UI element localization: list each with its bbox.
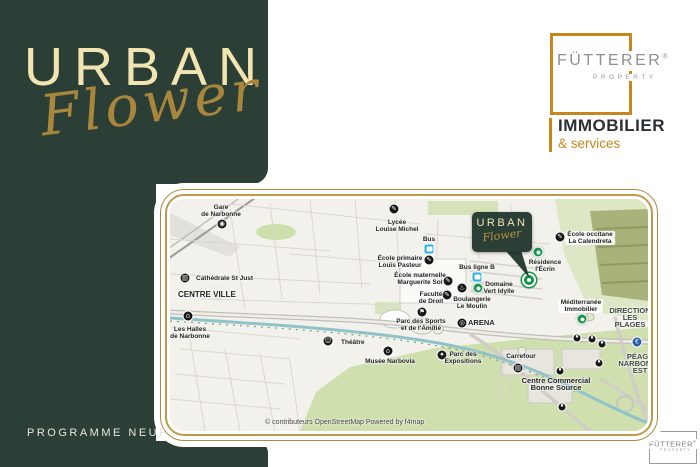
- urban-flower-callout: URBAN Flower: [472, 212, 532, 252]
- residence-l-ecrin-icon: [533, 247, 544, 258]
- map-content: ◉Garede Narbonne▥Cathédrale St JustCENTR…: [170, 199, 648, 431]
- gare-de-narbonne-icon: ◉: [217, 219, 228, 230]
- parc-des-expositions-label: Parc desExpositions: [445, 351, 482, 365]
- arena-label: ARENA: [468, 319, 495, 326]
- registered-mark: ®: [662, 54, 670, 61]
- boulangerie-le-moulin-label: BoulangerieLe Moulin: [453, 296, 491, 310]
- direction-les-plages-label: DIRECTIONLESPLAGES: [609, 307, 648, 329]
- shop-poi-4-icon: ▪: [595, 359, 604, 368]
- bus-label: Bus: [423, 236, 435, 243]
- logo-gold-bar: [549, 118, 552, 152]
- ecole-primaire-louis-pasteur-icon: ✎: [424, 255, 435, 266]
- domaine-vert-idylle-label: DomaineVert Idylle: [484, 281, 515, 295]
- shop-poi-2-icon: ▪: [588, 335, 597, 344]
- mediterranee-immobilier-label: MéditerranéeImmobilier: [559, 299, 603, 313]
- lycee-louise-michel-icon: ✎: [389, 204, 400, 215]
- centre-commercial-bonne-source-label: Centre CommercialBonne Source: [522, 377, 591, 391]
- bus-ligne-b-label: Bus ligne B: [459, 264, 495, 271]
- musee-narbovia-icon: ⌂: [383, 346, 394, 357]
- carrefour-label: Carrefour: [506, 353, 536, 360]
- futterer-logo: FÜTTERER® PROPERTY IMMOBILIER & services: [546, 28, 696, 160]
- flyer: URBAN Flower PROGRAMME NEUF FÜTTERER® PR…: [0, 0, 700, 467]
- cathedrale-st-just-icon: ▥: [180, 273, 191, 284]
- programme-neuf-label: PROGRAMME NEUF: [27, 427, 168, 439]
- shop-poi-1-icon: ▪: [573, 334, 582, 343]
- ecole-primaire-louis-pasteur-label: École primaireLouis Pasteur: [378, 255, 423, 269]
- parc-des-sports-icon: ⚑: [417, 307, 428, 318]
- theatre-icon: ☺: [323, 336, 334, 347]
- shop-poi-5-icon: ▪: [556, 367, 565, 376]
- bus-ligne-b-icon: [472, 272, 483, 283]
- logo-small-property: PROPERTY: [660, 448, 691, 452]
- musee-narbovia-label: Musée Narbovia: [365, 358, 415, 365]
- ecole-occitane-la-calendreta-icon: ✎: [555, 232, 566, 243]
- registered-mark-small: ®: [693, 439, 696, 444]
- carrefour-icon: ▤: [513, 363, 524, 374]
- theatre-label: Théâtre: [341, 339, 364, 346]
- les-halles-de-narbonne-label: Les Hallesde Narbonne: [170, 326, 210, 340]
- peage-narbonne-est-icon: €: [632, 337, 643, 348]
- centre-ville-label: CENTRE VILLE: [178, 291, 236, 298]
- arena-icon: ◎: [457, 318, 468, 329]
- peage-narbonne-est-label: PÉAGENARBONNEEST: [618, 353, 648, 375]
- lycee-louise-michel-label: LycéeLouise Michel: [376, 219, 419, 233]
- urban-flower-marker-icon: [522, 273, 536, 287]
- poi-layer: ◉Garede Narbonne▥Cathédrale St JustCENTR…: [170, 199, 648, 431]
- map-panel: ◉Garede Narbonne▥Cathédrale St JustCENTR…: [154, 183, 664, 447]
- logo-services: & services: [558, 136, 620, 151]
- cathedrale-st-just-label: Cathédrale St Just: [196, 275, 253, 282]
- parc-des-sports-label: Parc des Sportset de l'Amitié: [396, 318, 446, 332]
- map-attribution: © contributeurs OpenStreetMap Powered by…: [265, 419, 424, 426]
- shop-poi-3-icon: ▪: [598, 340, 607, 349]
- logo-immobilier: IMMOBILIER: [558, 116, 665, 136]
- shop-poi-6-icon: ▪: [558, 403, 567, 412]
- domaine-vert-idylle-icon: [473, 283, 484, 294]
- les-halles-de-narbonne-icon: ⌂: [183, 311, 194, 322]
- ecole-occitane-la-calendreta-label: École occitaneLa Calendreta: [565, 231, 615, 245]
- logo-property: PROPERTY: [590, 74, 660, 81]
- logo-name: FÜTTERER®: [554, 51, 673, 71]
- mediterranee-immobilier-icon: [577, 314, 588, 325]
- boulangerie-le-moulin-icon: ♨: [457, 283, 468, 294]
- bus-icon: [424, 244, 435, 255]
- residence-l-ecrin-label: Résidencel'Écrin: [529, 259, 562, 273]
- ecole-maternelle-marguerite-sol-label: École maternelleMarguerite Sol: [394, 272, 446, 286]
- gare-de-narbonne-label: Garede Narbonne: [201, 204, 241, 218]
- callout-subtitle: Flower: [472, 226, 533, 244]
- faculte-de-droit-label: Facultéde Droit: [419, 291, 444, 305]
